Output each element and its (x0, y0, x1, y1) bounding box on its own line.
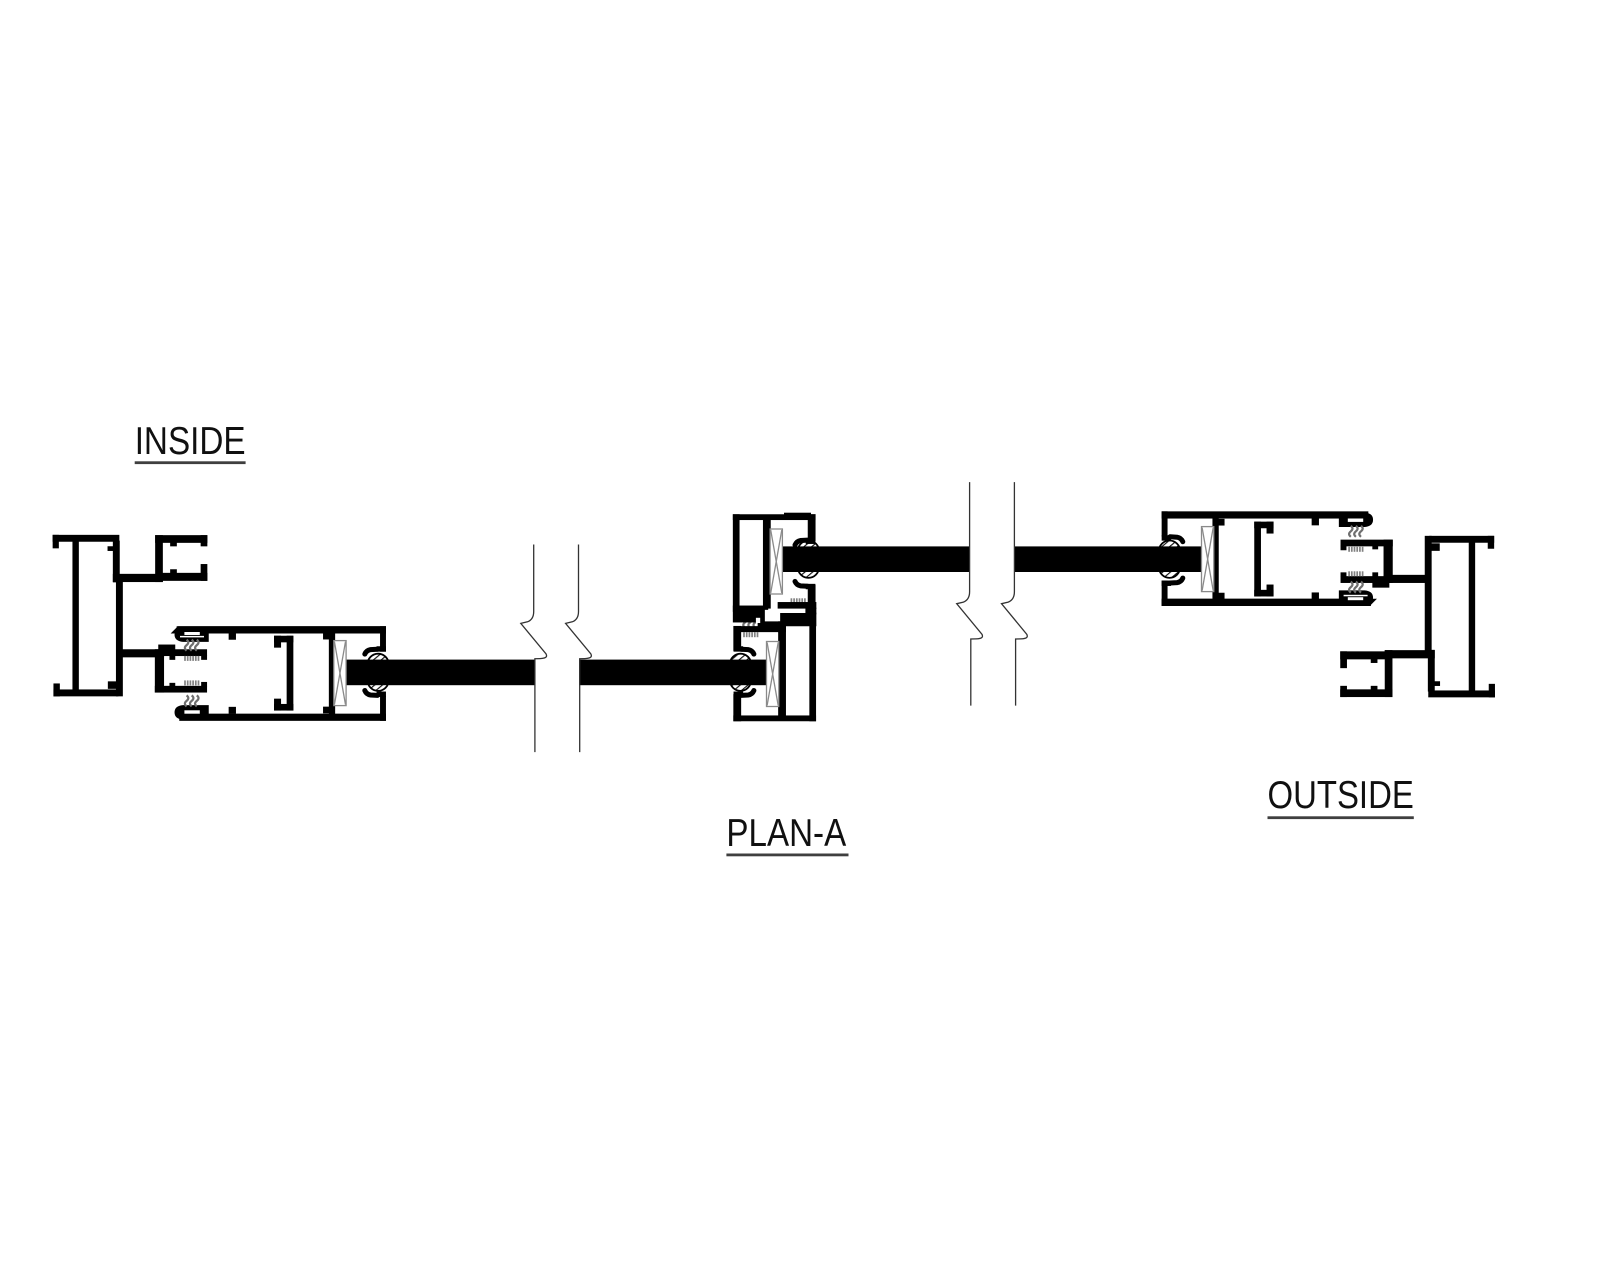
svg-text:PLAN-A: PLAN-A (726, 812, 846, 855)
svg-text:OUTSIDE: OUTSIDE (1268, 774, 1414, 817)
svg-text:INSIDE: INSIDE (135, 420, 246, 463)
